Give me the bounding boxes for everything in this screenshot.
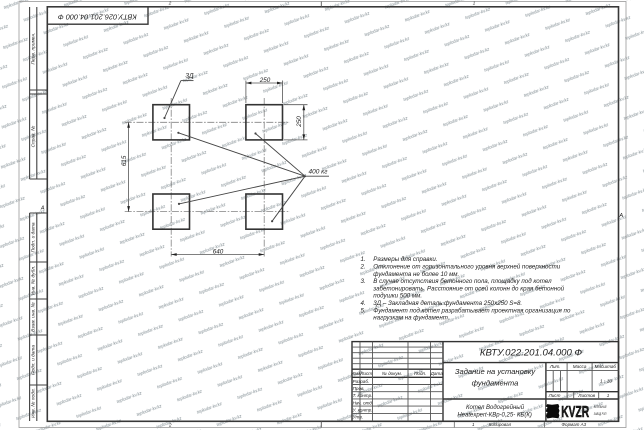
svg-text:250: 250 bbox=[259, 77, 271, 84]
svg-text:Копировал: Копировал bbox=[489, 422, 512, 427]
svg-text:фундамента: фундамента bbox=[472, 378, 519, 387]
svg-text:Масса: Масса bbox=[573, 364, 587, 369]
svg-text:Подп.: Подп. bbox=[414, 371, 426, 376]
svg-text:Подп. и дата: Подп. и дата bbox=[30, 345, 36, 375]
svg-text:1 : 10: 1 : 10 bbox=[600, 379, 613, 385]
svg-text:ЗАВОД РЭП: ЗАВОД РЭП bbox=[594, 412, 607, 416]
svg-text:Инв. № дубл.: Инв. № дубл. bbox=[30, 266, 36, 296]
svg-text:400 кг: 400 кг bbox=[309, 168, 329, 175]
svg-text:нагрузкам на фундамент.: нагрузкам на фундамент. bbox=[373, 315, 449, 322]
svg-text:Дата: Дата bbox=[430, 371, 444, 376]
svg-text:Формат А3: Формат А3 bbox=[561, 422, 586, 427]
svg-text:4.: 4. bbox=[361, 300, 366, 307]
svg-text:КВТУ.022.201.04.000 Ф: КВТУ.022.201.04.000 Ф bbox=[480, 347, 583, 358]
svg-text:фундамента не более 10 мм.: фундамента не более 10 мм. bbox=[373, 271, 459, 278]
svg-text:Взам. инв. №: Взам. инв. № bbox=[30, 302, 36, 332]
svg-text:Инв. № подл.: Инв. № подл. bbox=[30, 388, 36, 418]
svg-text:А: А bbox=[40, 206, 45, 212]
svg-text:Размеры для справки.: Размеры для справки. bbox=[373, 256, 437, 263]
svg-text:Heatexpert-КВр-0,25- КБ(К): Heatexpert-КВр-0,25- КБ(К) bbox=[457, 413, 532, 419]
svg-text:Подп. и дата: Подп. и дата bbox=[30, 222, 36, 252]
svg-text:подушки 500 мм.: подушки 500 мм. bbox=[373, 293, 422, 300]
svg-text:Листов: Листов bbox=[577, 393, 595, 398]
svg-text:Лист: Лист bbox=[359, 371, 372, 376]
svg-text:№ докум.: № докум. bbox=[382, 371, 402, 376]
svg-text:Пров.: Пров. bbox=[353, 386, 365, 391]
svg-text:Лит.: Лит. bbox=[549, 364, 561, 369]
svg-text:Т. контр.: Т. контр. bbox=[353, 393, 373, 398]
svg-text:Нач. отд: Нач. отд bbox=[353, 400, 373, 405]
svg-text:А: А bbox=[618, 213, 623, 219]
svg-text:Котел Водогрейный: Котел Водогрейный bbox=[466, 404, 525, 411]
svg-text:Лист: Лист bbox=[548, 393, 561, 398]
svg-text:2: 2 bbox=[168, 1, 172, 6]
svg-text:615: 615 bbox=[121, 155, 128, 166]
svg-text:1: 1 bbox=[607, 393, 610, 398]
svg-text:Задание на установку: Задание на установку bbox=[455, 367, 537, 376]
svg-text:КВТУ.026.201.04.000 Ф: КВТУ.026.201.04.000 Ф bbox=[58, 13, 137, 22]
svg-text:У. контр.: У. контр. bbox=[353, 407, 373, 412]
svg-text:Масштаб: Масштаб bbox=[595, 364, 617, 369]
svg-text:2.: 2. bbox=[360, 264, 366, 271]
svg-text:Отклонение от горизонтального: Отклонение от горизонтального уровня вер… bbox=[373, 264, 560, 271]
svg-text:3Д – Закладная деталь фундамен: 3Д – Закладная деталь фундамента 250х250… bbox=[373, 300, 522, 307]
svg-text:2: 2 bbox=[168, 422, 172, 427]
svg-text:250: 250 bbox=[296, 116, 303, 128]
svg-text:Справ. №: Справ. № bbox=[30, 126, 36, 148]
svg-text:KVZR: KVZR bbox=[561, 404, 589, 421]
svg-text:1.: 1. bbox=[361, 256, 366, 263]
svg-text:Утв.: Утв. bbox=[353, 415, 363, 420]
svg-text:Перв. примен.: Перв. примен. bbox=[30, 33, 36, 65]
svg-text:забетонировать. Расстояние от: забетонировать. Расстояние от осей колон… bbox=[372, 285, 564, 292]
svg-text:3.: 3. bbox=[361, 278, 366, 285]
svg-text:Фундамент под котел разрабатыв: Фундамент под котел разрабатывает проект… bbox=[373, 307, 571, 314]
svg-text:5.: 5. bbox=[361, 307, 366, 314]
svg-text:В случае отсутствия бетонного: В случае отсутствия бетонного пола, площ… bbox=[373, 278, 552, 285]
svg-text:КОТЕЛЬНЫЙ: КОТЕЛЬНЫЙ bbox=[594, 405, 607, 409]
svg-text:3Д: 3Д bbox=[185, 73, 194, 80]
svg-text:640: 640 bbox=[213, 249, 224, 256]
svg-text:Разраб.: Разраб. bbox=[353, 379, 370, 384]
